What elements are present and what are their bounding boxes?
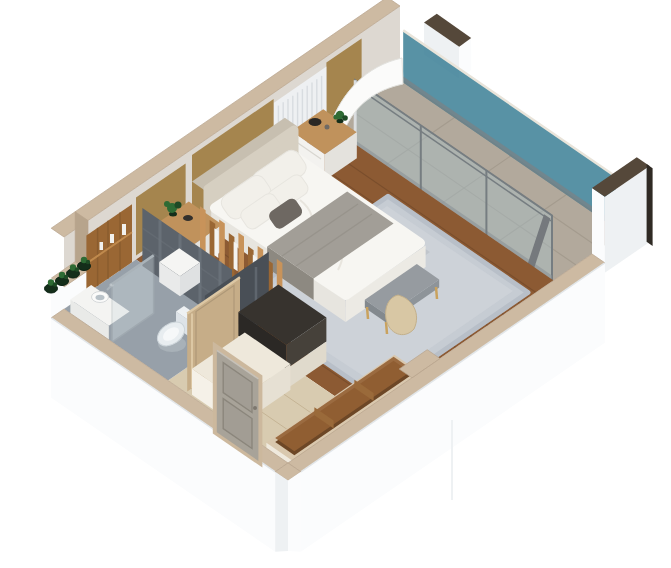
isometric-floorplan: 3D isometric cutaway floor plan of a stu… (0, 0, 671, 568)
basin-bowl (96, 295, 105, 301)
pillar-right-edge (647, 164, 653, 246)
floorplan-canvas: 3D isometric cutaway floor plan of a stu… (0, 0, 671, 568)
south-corner-skirt2 (288, 472, 301, 552)
door-knob (253, 406, 257, 410)
south-corner-skirt (275, 472, 288, 552)
